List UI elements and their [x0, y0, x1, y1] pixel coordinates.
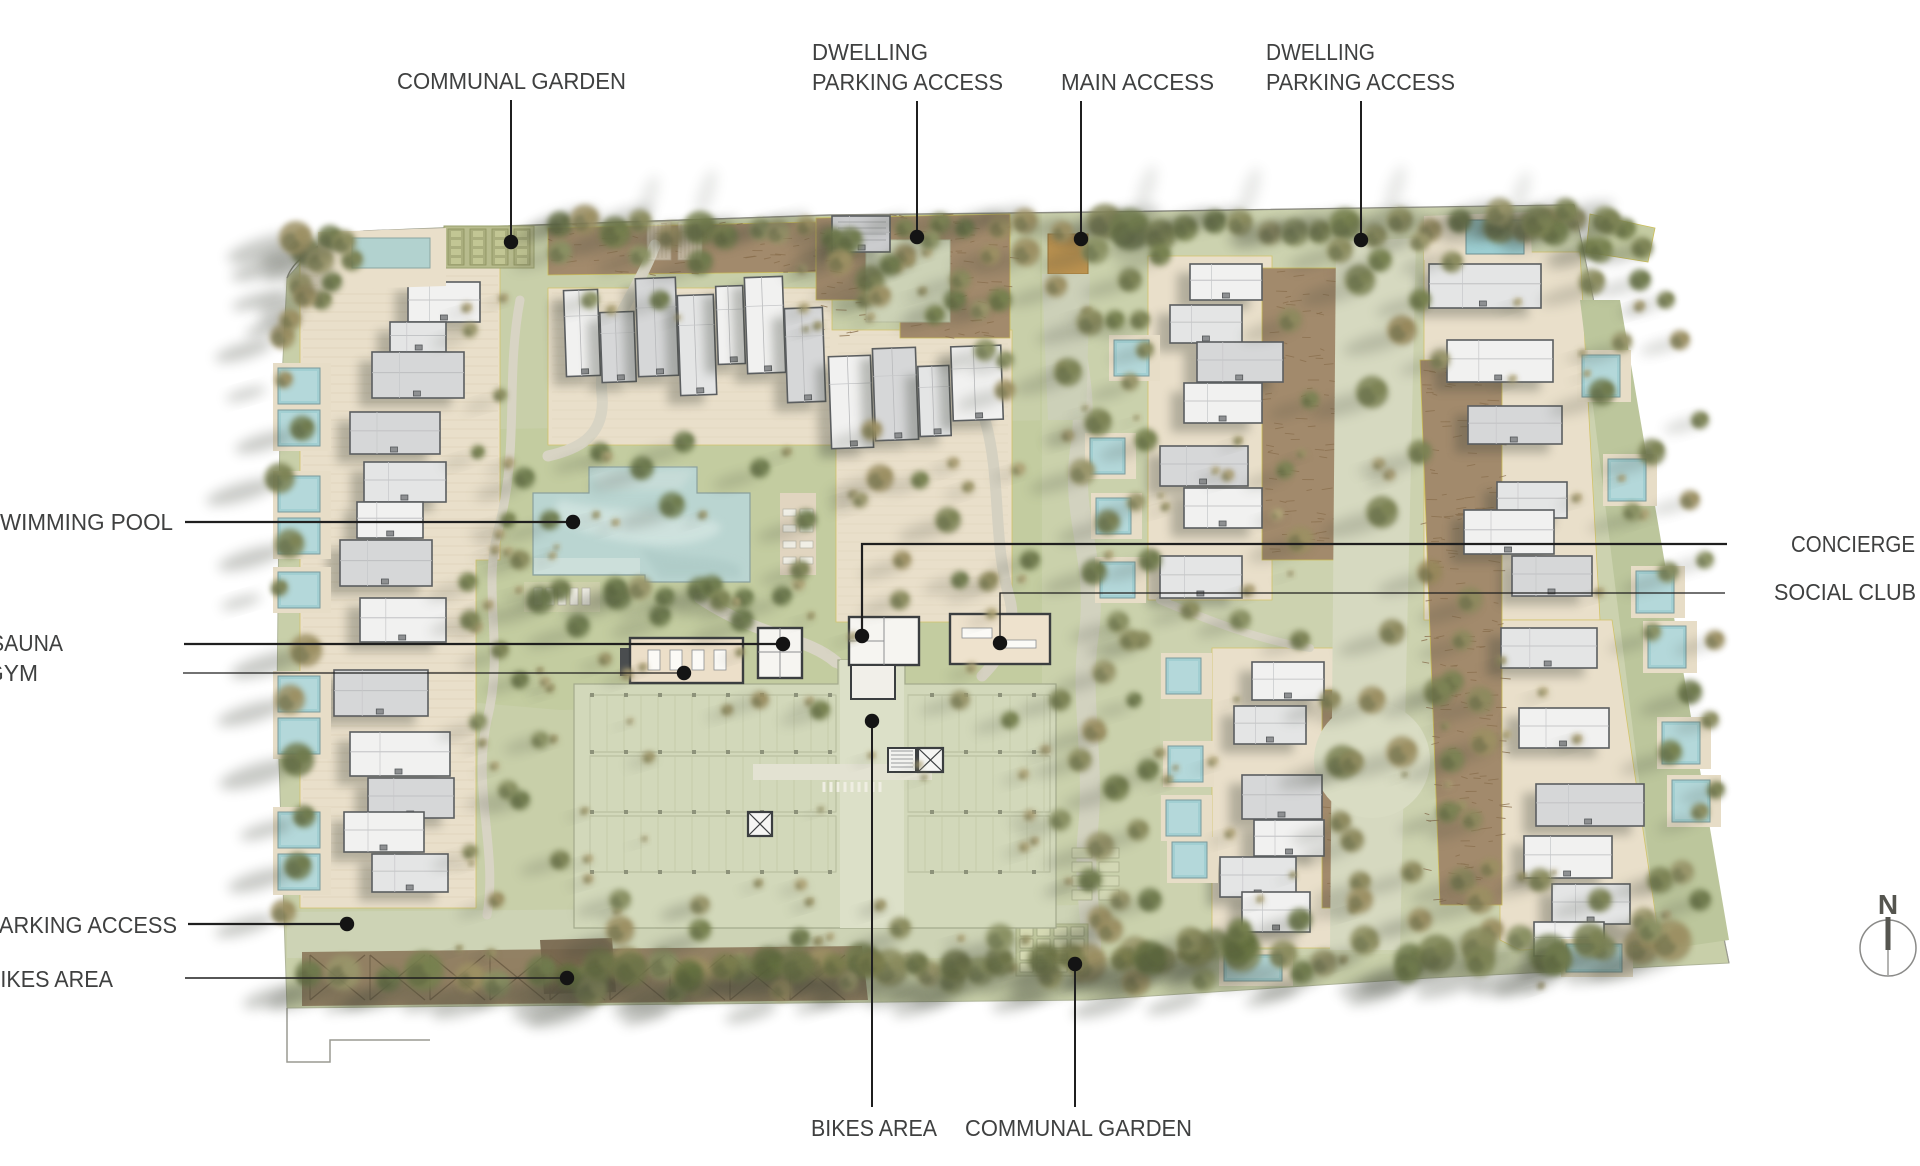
svg-text:N: N: [1878, 889, 1898, 920]
svg-text:SAUNA: SAUNA: [0, 630, 63, 656]
svg-text:COMMUNAL GARDEN: COMMUNAL GARDEN: [965, 1115, 1192, 1141]
svg-text:PARKING ACCESS: PARKING ACCESS: [0, 912, 177, 938]
svg-text:SWIMMING POOL: SWIMMING POOL: [0, 509, 173, 535]
svg-text:PARKING ACCESS: PARKING ACCESS: [1266, 69, 1455, 95]
svg-text:COMMUNAL GARDEN: COMMUNAL GARDEN: [397, 68, 626, 94]
svg-text:DWELLING: DWELLING: [812, 39, 928, 65]
svg-text:BIKES AREA: BIKES AREA: [811, 1115, 937, 1141]
svg-text:CONCIERGE: CONCIERGE: [1791, 531, 1915, 557]
svg-text:MAIN ACCESS: MAIN ACCESS: [1061, 69, 1214, 95]
svg-text:GYM: GYM: [0, 660, 38, 686]
svg-text:PARKING ACCESS: PARKING ACCESS: [812, 69, 1003, 95]
svg-text:SOCIAL CLUB: SOCIAL CLUB: [1774, 579, 1916, 605]
svg-text:DWELLING: DWELLING: [1266, 39, 1375, 65]
svg-text:BIKES AREA: BIKES AREA: [0, 966, 113, 992]
